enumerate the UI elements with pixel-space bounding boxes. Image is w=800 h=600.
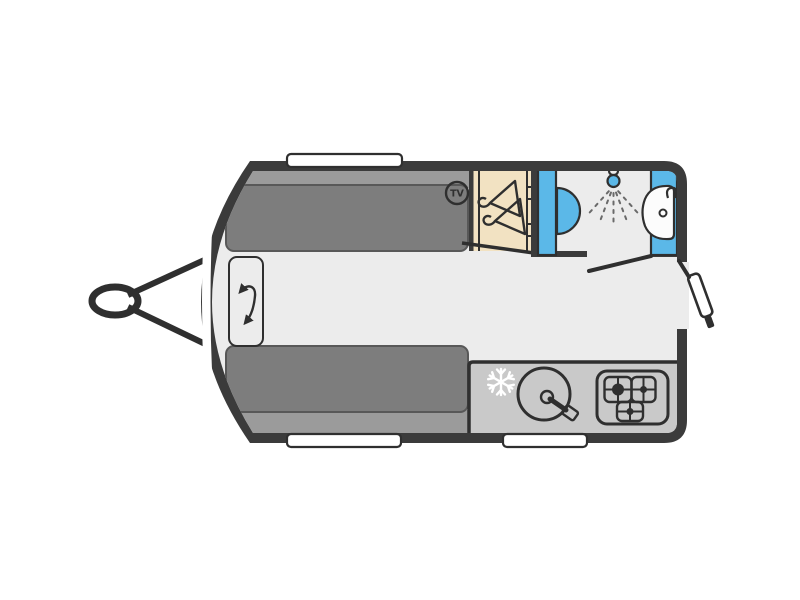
shower-head-icon [608, 175, 620, 187]
washroom-left-wall [531, 162, 537, 257]
burner-small [640, 386, 647, 393]
floorplan-canvas: TV [0, 0, 800, 600]
entry-door [672, 261, 718, 329]
bench-seat-top [226, 185, 468, 251]
roof-window-top [287, 154, 402, 167]
washbasin [643, 186, 675, 239]
kitchen [469, 362, 677, 433]
front-window [206, 226, 208, 378]
caravan-floorplan-svg: TV [0, 0, 800, 600]
burner-large [612, 384, 624, 396]
tv-badge-label: TV [450, 189, 464, 200]
entry-door-leaf [687, 273, 717, 330]
door-handle [704, 315, 715, 329]
burner-bottom [627, 408, 634, 415]
toilet-cistern [538, 166, 556, 255]
hitch-coupling [92, 287, 138, 315]
wardrobe [462, 171, 534, 253]
bench-backrest-bottom [228, 410, 470, 433]
wardrobe-left-edge [469, 171, 474, 251]
side-window-bottom-right [503, 434, 587, 447]
bench-seat-bottom [226, 346, 468, 412]
side-window-bottom-left [287, 434, 401, 447]
